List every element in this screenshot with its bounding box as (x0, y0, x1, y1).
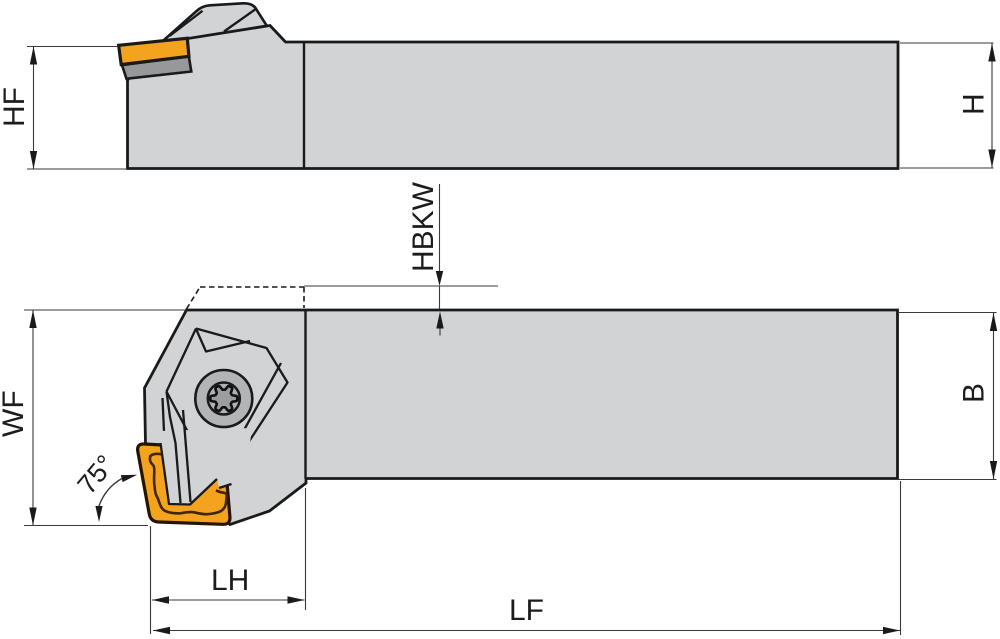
svg-text:HF: HF (0, 87, 31, 127)
svg-text:LF: LF (509, 594, 544, 627)
svg-text:H: H (958, 93, 991, 115)
svg-text:B: B (958, 383, 991, 403)
svg-text:WF: WF (0, 390, 30, 437)
svg-text:HBKW: HBKW (407, 181, 440, 272)
svg-text:75°: 75° (72, 449, 121, 500)
svg-text:LH: LH (211, 564, 249, 597)
